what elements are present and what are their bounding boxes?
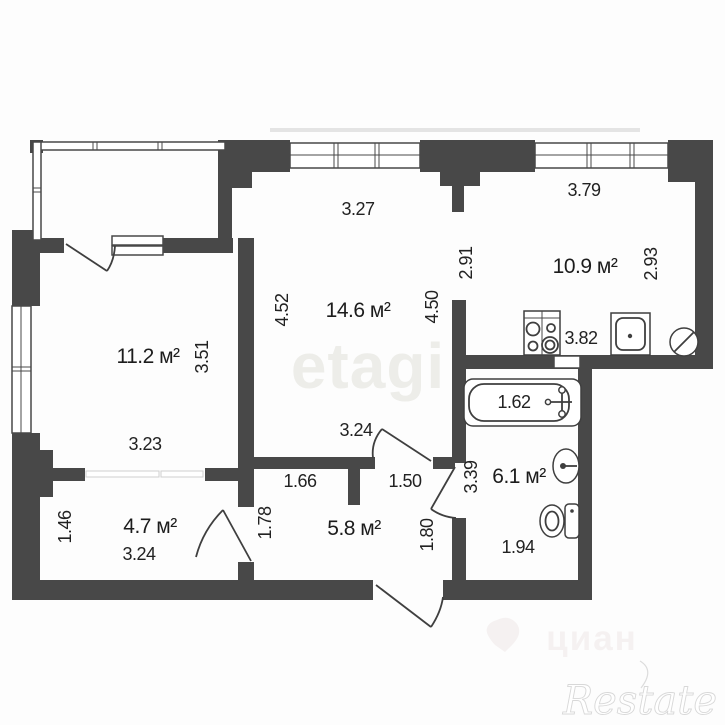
dim-kitchen-left: 2.91	[456, 246, 476, 280]
balcony-sill-window-bottom	[112, 246, 163, 255]
dim-hallway-right: 1.80	[417, 518, 437, 552]
watermark-etagi: etagi	[291, 330, 445, 402]
closet-line-left	[86, 471, 159, 477]
cabinet-door-arc	[196, 510, 223, 557]
portal-pin-icon	[487, 618, 520, 652]
wall-top-right-corner	[668, 140, 713, 182]
closet-line-right	[161, 471, 203, 477]
dim-cabinet-bottom: 3.24	[122, 544, 156, 564]
label-cabinet-area: 4.7 м²	[123, 515, 177, 538]
watermark-restate: Restate	[562, 678, 717, 724]
balcony-glazing-left	[33, 142, 41, 240]
bathroom-door-leaf	[431, 467, 455, 509]
dim-bedroom-right: 3.51	[192, 340, 212, 374]
entrance-door-arc	[431, 597, 443, 627]
dim-kitchen-right: 2.93	[641, 247, 661, 281]
wall-left-upper	[12, 230, 40, 306]
wall-kitchen-stub	[452, 186, 464, 212]
wall-balcony-right	[218, 188, 232, 240]
wall-living-bottom-c	[433, 457, 455, 469]
dim-kitchen-top: 3.79	[567, 180, 601, 200]
living-door-leaf	[382, 429, 431, 461]
dim-bedroom-bottom: 3.23	[128, 434, 162, 454]
wall-top-block-step	[218, 172, 252, 188]
appliance-circle-icon	[670, 328, 698, 356]
label-hallway-area: 5.8 м²	[327, 517, 381, 540]
dim-hallway-top-left: 1.66	[283, 471, 317, 491]
watermark-cian: циан	[546, 619, 638, 658]
floor-plan-svg: etagi циан Restate 14.6 м² 11.2 м² 10.9 …	[0, 0, 725, 725]
dim-bathroom-bottom: 1.94	[501, 537, 535, 557]
cabinet-door-leaf	[223, 510, 251, 561]
wall-left-lower	[12, 433, 40, 600]
dim-living-top: 3.27	[341, 199, 375, 219]
living-door-arc	[373, 429, 382, 458]
balcony-door-arc	[107, 246, 115, 271]
dim-kitchen-bottom: 3.82	[564, 328, 598, 348]
bathroom-door-arc	[431, 509, 456, 518]
balcony-door-leaf	[66, 244, 107, 271]
wall-partition-stub-left	[40, 468, 85, 481]
label-living-area: 14.6 м²	[326, 299, 391, 322]
dim-cabinet-left: 1.46	[55, 510, 75, 544]
wall-living-bottom-a	[238, 457, 358, 469]
wall-bottom-left	[12, 580, 373, 600]
watermark-portal-group: циан	[487, 618, 638, 658]
wall-top-block-left	[218, 140, 290, 172]
entrance-door-leaf	[376, 585, 431, 627]
dim-living-right: 4.50	[422, 290, 442, 324]
floor-plan-image: etagi циан Restate 14.6 м² 11.2 м² 10.9 …	[0, 0, 725, 725]
label-bedroom-area: 11.2 м²	[116, 345, 180, 368]
kitchen-sink-icon	[611, 313, 650, 355]
doors	[66, 244, 456, 627]
wall-duct-notch	[554, 356, 580, 368]
dim-living-left: 4.52	[272, 293, 292, 327]
wall-kitchen-bottom	[452, 355, 713, 369]
dim-bathtub-length: 1.62	[497, 392, 531, 412]
wall-partition-right	[205, 468, 238, 481]
label-kitchen-area: 10.9 м²	[553, 255, 618, 278]
dim-bathroom-left: 3.39	[461, 460, 481, 494]
stove-icon	[524, 311, 560, 355]
balcony-glazing-top	[33, 142, 225, 150]
dim-hallway-top-right: 1.50	[388, 471, 422, 491]
washbasin-icon	[553, 449, 579, 483]
toilet-icon	[540, 504, 579, 538]
label-bathroom-area: 6.1 м²	[492, 465, 546, 488]
dim-hallway-left: 1.78	[255, 506, 275, 540]
wall-balcony-bottom-right	[163, 238, 233, 253]
wall-window-pier	[420, 140, 535, 172]
wall-balcony-bottom-left	[40, 238, 64, 253]
wall-bathroom-left-upper	[452, 300, 466, 463]
watermark-brand-group: Restate	[562, 661, 717, 724]
dim-living-bottom: 3.24	[339, 420, 373, 440]
wall-living-bottom-b	[358, 457, 375, 469]
wall-window-pier-step	[440, 172, 480, 186]
wall-bottom-right	[443, 580, 592, 600]
balcony-sill-window-top	[112, 236, 163, 245]
roof-line	[270, 128, 640, 132]
